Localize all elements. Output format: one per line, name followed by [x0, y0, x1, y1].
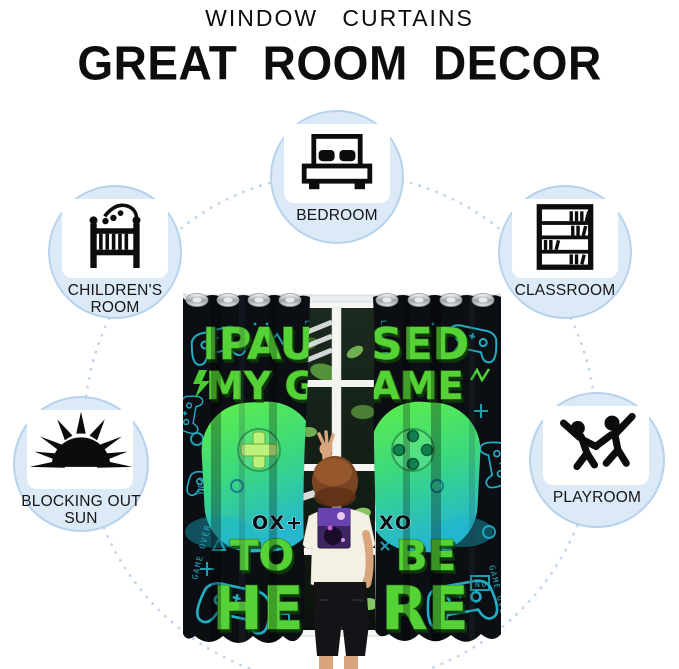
- page-title: WINDOW CURTAINS: [0, 0, 679, 32]
- boy-left-arm: [366, 534, 370, 580]
- pattern-word: NO: [475, 580, 488, 589]
- window-muntin: [297, 380, 375, 387]
- tshirt-graphic: [318, 508, 350, 548]
- badge-playroom: PLAYROOM: [529, 392, 665, 528]
- boy-leg: [344, 656, 358, 669]
- badge-label: CLASSROOM: [503, 282, 627, 299]
- slogan-line: MY G: [206, 364, 316, 408]
- badge-childrens-room: CHILDREN'S ROOM: [48, 185, 182, 319]
- slogan-line: HE: [212, 574, 303, 644]
- slogan-line: RE: [381, 574, 468, 644]
- badge-label: BEDROOM: [275, 207, 399, 224]
- badge-label: BLOCKING OUT SUN: [18, 493, 144, 527]
- badge-blocking-out-sun: BLOCKING OUT SUN: [13, 396, 149, 532]
- bookshelf-icon: [527, 203, 603, 271]
- header: WINDOW CURTAINS GREAT ROOM DECOR: [0, 0, 679, 90]
- page-subtitle: GREAT ROOM DECOR: [0, 35, 679, 91]
- badge-classroom: CLASSROOM: [498, 185, 632, 319]
- badge-label: PLAYROOM: [534, 489, 660, 506]
- product-infographic: WINDOW CURTAINS GREAT ROOM DECOR BEDROOM: [0, 0, 679, 669]
- curtain-product-photo: ON GAME OVER LOADING YES IPAU MY G OX+ T…: [183, 284, 501, 669]
- slogan-line: AME: [370, 364, 463, 408]
- badge-label: CHILDREN'S ROOM: [53, 282, 177, 316]
- bed-icon: [297, 129, 377, 195]
- badge-bedroom: BEDROOM: [270, 110, 404, 244]
- crib-icon: [75, 202, 155, 272]
- boy-leg: [319, 656, 333, 669]
- slogan-line: SED: [371, 319, 469, 370]
- boy-pants: [314, 582, 369, 656]
- sun-icon: [28, 407, 134, 483]
- children-playing-icon: [551, 411, 643, 477]
